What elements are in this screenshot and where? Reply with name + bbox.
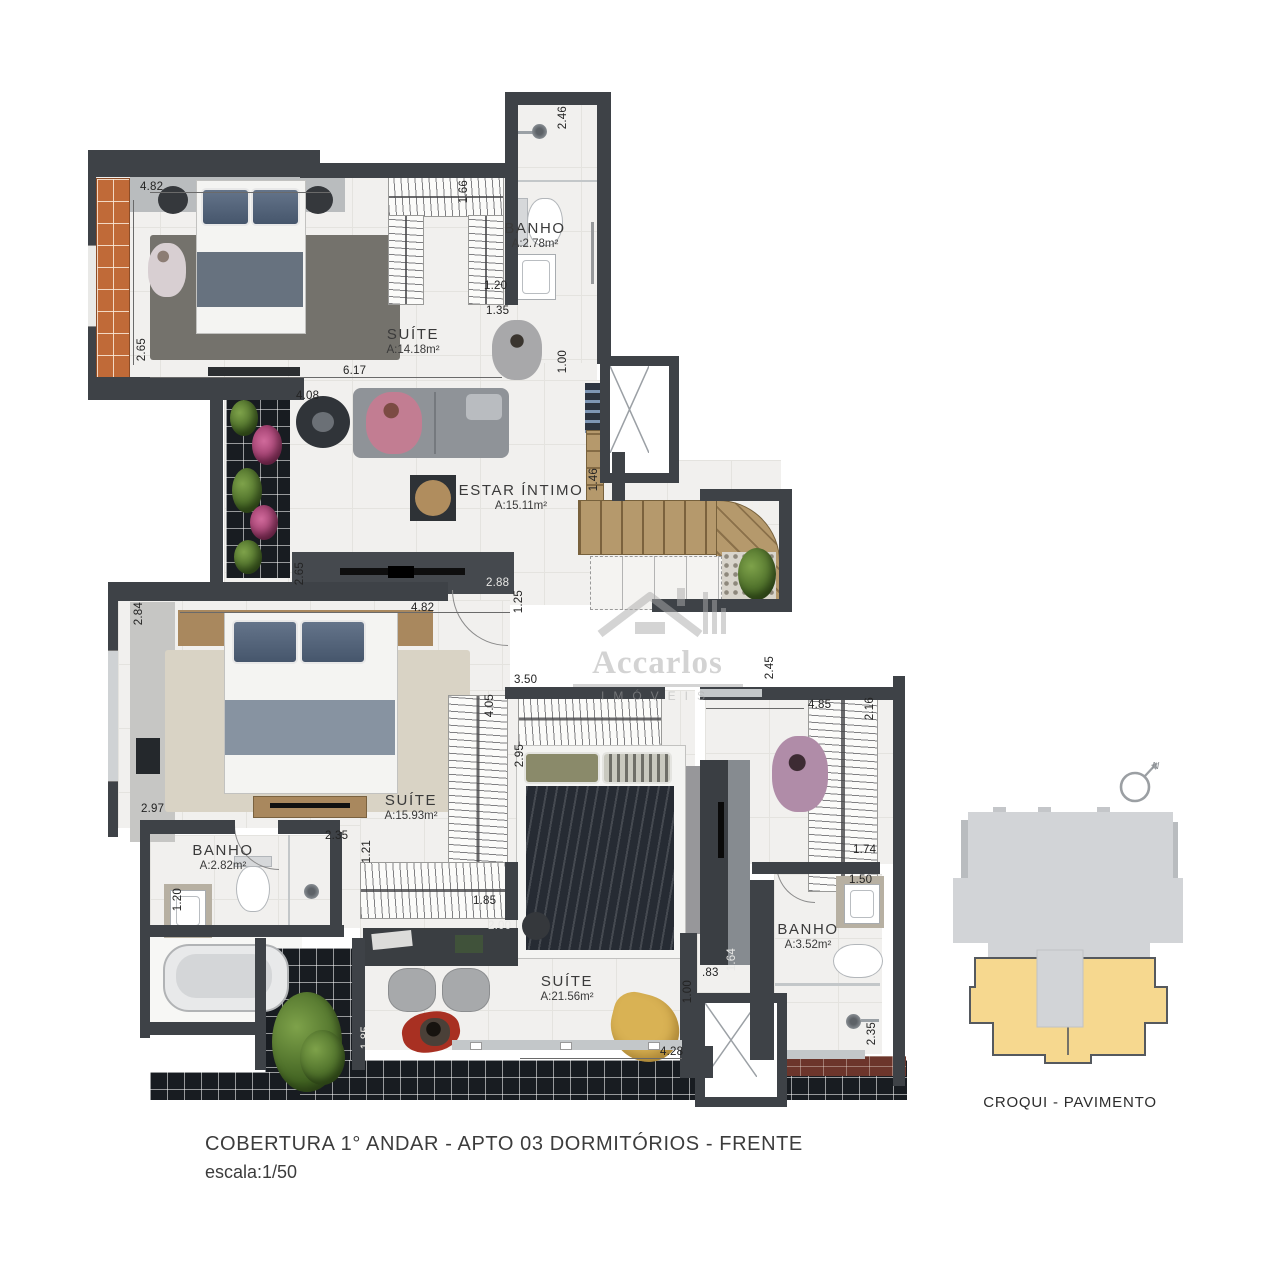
- sill: [777, 1050, 865, 1059]
- laptop: [455, 935, 483, 953]
- watermark: Accarlos IMÓVEIS: [545, 582, 770, 703]
- shower-divider: [517, 180, 597, 182]
- dimension-label: 3.50: [514, 674, 537, 686]
- room-area: A:3.52m²: [758, 939, 858, 951]
- dim-line: [180, 612, 510, 613]
- tv: [270, 803, 350, 808]
- flower-plant: [252, 425, 282, 465]
- wall: [88, 377, 304, 400]
- person-figure: [492, 320, 542, 380]
- round-chair-cushion: [312, 412, 334, 432]
- elevator-x-icon: [610, 366, 649, 453]
- room-name: ESTAR ÍNTIMO: [451, 482, 591, 499]
- title-block: COBERTURA 1° ANDAR - APTO 03 DORMITÓRIOS…: [205, 1133, 803, 1183]
- sink: [516, 254, 556, 300]
- shower-head-icon: [846, 1014, 861, 1029]
- plant: [234, 540, 262, 574]
- wardrobe-suite1: [388, 215, 424, 305]
- pillow: [232, 620, 298, 664]
- pillow: [201, 188, 250, 226]
- floorplan-canvas: 4.82 2.65 6.17 1.66 1.20 1.35 2.46 1.00 …: [0, 0, 1280, 1275]
- north-indicator-icon: N: [1121, 761, 1160, 801]
- dimension-label: 2.35: [325, 830, 348, 842]
- dimension-label: 4.05: [484, 694, 496, 717]
- flower-plant: [250, 505, 278, 540]
- stairs: [578, 500, 725, 555]
- dimension-label: 4.08: [296, 390, 319, 402]
- room-name: SUÍTE: [353, 326, 473, 343]
- dimension-label: 2.35: [866, 1022, 878, 1045]
- plant: [230, 400, 258, 436]
- room-label-suite3: SUÍTE A:21.56m²: [507, 973, 627, 1003]
- wall: [597, 92, 611, 364]
- dimension-label: 1.20: [172, 888, 184, 911]
- dimension-label: 4.82: [411, 602, 434, 614]
- room-label-suite2: SUÍTE A:15.93m²: [351, 792, 471, 822]
- dimension-label: 1.66: [458, 180, 470, 203]
- wall: [352, 938, 365, 1070]
- rail-post: [560, 1042, 572, 1050]
- sofa-seam: [434, 392, 436, 454]
- chair: [388, 968, 436, 1012]
- room-area: A:15.11m²: [451, 500, 591, 512]
- shower-divider: [775, 983, 880, 986]
- room-name: BANHO: [485, 220, 585, 237]
- person-figure: [148, 243, 186, 297]
- person-figure: [772, 736, 828, 812]
- watermark-house-icon: [545, 582, 770, 644]
- dimension-label: 4.85: [808, 699, 831, 711]
- wall: [505, 862, 518, 920]
- dimension-label: 1.85: [360, 1026, 372, 1049]
- dimension-label: 2.84: [133, 602, 145, 625]
- croqui-core: [1037, 950, 1083, 1027]
- wall: [88, 150, 320, 177]
- dimension-label: 2.46: [557, 106, 569, 129]
- croqui: N CROQUI - PAVIMENTO: [945, 755, 1195, 1155]
- shower-head-icon: [532, 124, 547, 139]
- dimension-label: 1.85: [473, 895, 496, 907]
- room-area: A:2.82m²: [173, 860, 273, 872]
- tv-partition: [700, 760, 728, 965]
- wardrobe-suite2-bottom: [360, 862, 510, 919]
- chair: [442, 968, 490, 1012]
- tv-partition-side: [728, 760, 750, 965]
- room-area: A:14.18m²: [353, 344, 473, 356]
- watermark-sub: IMÓVEIS: [573, 684, 743, 703]
- terrace-tiles-left: [150, 1072, 300, 1100]
- person-figure: [366, 392, 422, 454]
- dimension-label: 2.95: [514, 744, 526, 767]
- wardrobe-suite2: [448, 695, 508, 867]
- room-name: SUÍTE: [351, 792, 471, 809]
- wall: [505, 100, 518, 305]
- tv: [718, 802, 724, 858]
- dimension-label: 4.82: [140, 181, 163, 193]
- plan-scale: escala:1/50: [205, 1162, 803, 1183]
- dimension-label: 1.00: [682, 980, 694, 1003]
- terrace-plant: [300, 1030, 345, 1085]
- wall: [330, 832, 342, 932]
- pillow: [524, 752, 600, 784]
- wall: [680, 1046, 713, 1078]
- wall: [700, 489, 790, 501]
- room-label-banho1: BANHO A:2.78m²: [485, 220, 585, 250]
- room-area: A:2.78m²: [485, 238, 585, 250]
- window: [108, 650, 118, 782]
- dimension-label: 2.65: [294, 562, 306, 585]
- dimension-label: 1.20: [484, 280, 507, 292]
- wall: [750, 880, 774, 1060]
- dimension-label: .83: [702, 967, 719, 979]
- room-label-banho3: BANHO A:3.52m²: [758, 921, 858, 951]
- dim-line: [150, 377, 502, 378]
- dim-line: [133, 200, 134, 365]
- coffee-table: [415, 480, 451, 516]
- wall: [148, 925, 344, 937]
- dim-line: [520, 1058, 682, 1059]
- pillow: [300, 620, 366, 664]
- wall: [148, 820, 235, 834]
- dimension-label: 1.50: [849, 874, 872, 886]
- dimension-label: 4.28: [660, 1046, 683, 1058]
- shower-head-icon: [304, 884, 319, 899]
- dimension-label: 2.88: [486, 577, 509, 589]
- dimension-label: 2.00: [488, 920, 511, 932]
- wall: [300, 163, 518, 178]
- dim-line: [706, 708, 804, 709]
- croqui-caption: CROQUI - PAVIMENTO: [983, 1094, 1157, 1111]
- dimension-label: 1.00: [557, 350, 569, 373]
- room-area: A:15.93m²: [351, 810, 471, 822]
- person-figure: [420, 1018, 450, 1046]
- dimension-label: 4.86: [748, 501, 771, 513]
- north-label: N: [1152, 761, 1160, 772]
- soundbar: [388, 566, 414, 578]
- room-label-banho2: BANHO A:2.82m²: [173, 842, 273, 872]
- wall: [752, 862, 880, 874]
- window: [88, 245, 96, 327]
- croqui-building: [953, 807, 1183, 957]
- room-label-suite1: SUÍTE A:14.18m²: [353, 326, 473, 356]
- dimension-label: 1.35: [486, 305, 509, 317]
- shower-divider: [288, 835, 290, 927]
- pillow: [251, 188, 300, 226]
- toilet: [236, 866, 270, 912]
- room-name: BANHO: [758, 921, 858, 938]
- nightstand: [522, 912, 550, 940]
- dimension-label: 1.21: [361, 840, 373, 863]
- wall: [255, 938, 266, 1070]
- room-name: BANHO: [173, 842, 273, 859]
- wall: [110, 582, 448, 601]
- room-name: SUÍTE: [507, 973, 627, 990]
- tv-console: [208, 367, 300, 376]
- rail-post: [648, 1042, 660, 1050]
- room-label-estar: ESTAR ÍNTIMO A:15.11m²: [451, 482, 591, 512]
- wardrobe-suite1: [388, 177, 504, 217]
- watermark-brand: Accarlos: [545, 645, 770, 682]
- dimension-label: 1.25: [513, 590, 525, 613]
- dimension-label: 1.74: [853, 844, 876, 856]
- balcony-orange-tiles: [96, 178, 130, 380]
- rail-post: [470, 1042, 482, 1050]
- dimension-label: 2.16: [864, 697, 876, 720]
- dimension-label: 1.64: [726, 948, 738, 971]
- sink: [844, 884, 880, 924]
- blanket: [197, 252, 303, 307]
- towel-rail: [591, 222, 594, 284]
- shelf-cabinet: [585, 383, 600, 433]
- dim-line: [150, 192, 330, 193]
- dimension-label: 2.97: [141, 803, 164, 815]
- room-area: A:21.56m²: [507, 991, 627, 1003]
- wall: [612, 452, 625, 501]
- blanket: [225, 700, 395, 755]
- wall: [893, 676, 905, 1086]
- wall-tv: [136, 738, 160, 774]
- wall: [505, 92, 611, 105]
- dimension-label: 6.17: [343, 365, 366, 377]
- sofa-pillow: [466, 394, 502, 420]
- wall: [210, 390, 223, 582]
- pillow-striped: [602, 752, 672, 784]
- wall: [140, 1022, 262, 1035]
- plan-title: COBERTURA 1° ANDAR - APTO 03 DORMITÓRIOS…: [205, 1133, 803, 1156]
- wall: [779, 489, 792, 611]
- nightstand: [303, 186, 333, 214]
- dimension-label: 2.65: [136, 338, 148, 361]
